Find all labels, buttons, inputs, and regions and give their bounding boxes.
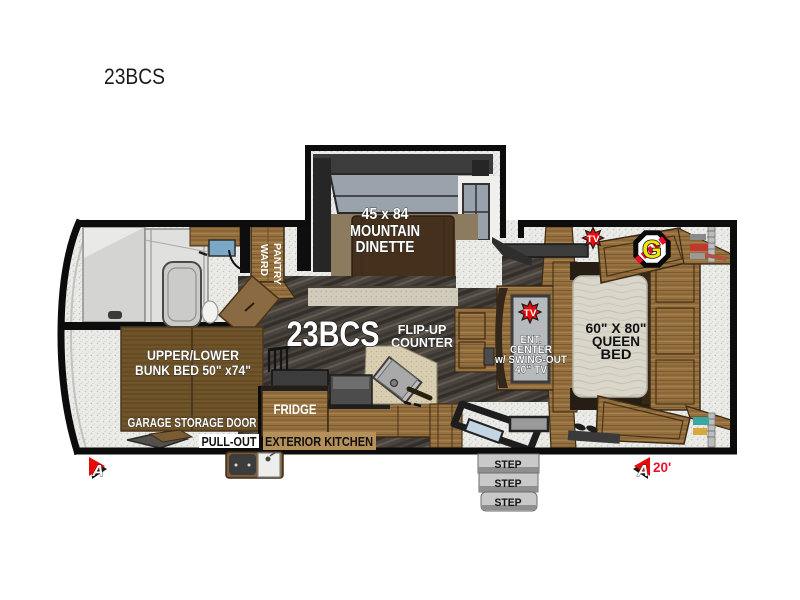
svg-text:GARAGE STORAGE DOOR: GARAGE STORAGE DOOR: [128, 416, 257, 430]
svg-text:TV: TV: [587, 234, 601, 245]
svg-text:TV: TV: [524, 308, 538, 319]
svg-text:STEP: STEP: [495, 478, 522, 490]
svg-text:45 x 84: 45 x 84: [362, 206, 409, 223]
svg-text:A: A: [91, 463, 104, 480]
svg-text:A: A: [636, 463, 649, 480]
svg-text:STEP: STEP: [495, 459, 522, 471]
svg-text:COUNTER: COUNTER: [391, 336, 453, 350]
svg-text:UPPER/LOWER: UPPER/LOWER: [147, 347, 239, 363]
svg-text:23BCS: 23BCS: [104, 64, 165, 89]
svg-text:FLIP-UP: FLIP-UP: [398, 323, 447, 337]
svg-text:WARD: WARD: [258, 244, 270, 276]
svg-text:FRIDGE: FRIDGE: [274, 402, 317, 417]
svg-text:DINETTE: DINETTE: [356, 239, 415, 256]
svg-text:23BCS: 23BCS: [287, 315, 380, 354]
svg-text:PULL-OUT: PULL-OUT: [202, 434, 257, 449]
svg-text:20': 20': [653, 460, 671, 475]
svg-text:BED: BED: [601, 347, 632, 362]
svg-text:STEP: STEP: [495, 497, 522, 509]
svg-text:MOUNTAIN: MOUNTAIN: [350, 223, 420, 240]
svg-text:BUNK BED 50" x74": BUNK BED 50" x74": [135, 362, 251, 378]
svg-text:EXTERIOR KITCHEN: EXTERIOR KITCHEN: [265, 434, 373, 449]
svg-text:G: G: [642, 236, 661, 264]
svg-text:PANTRY: PANTRY: [271, 243, 283, 285]
svg-text:40" TV: 40" TV: [515, 364, 548, 376]
